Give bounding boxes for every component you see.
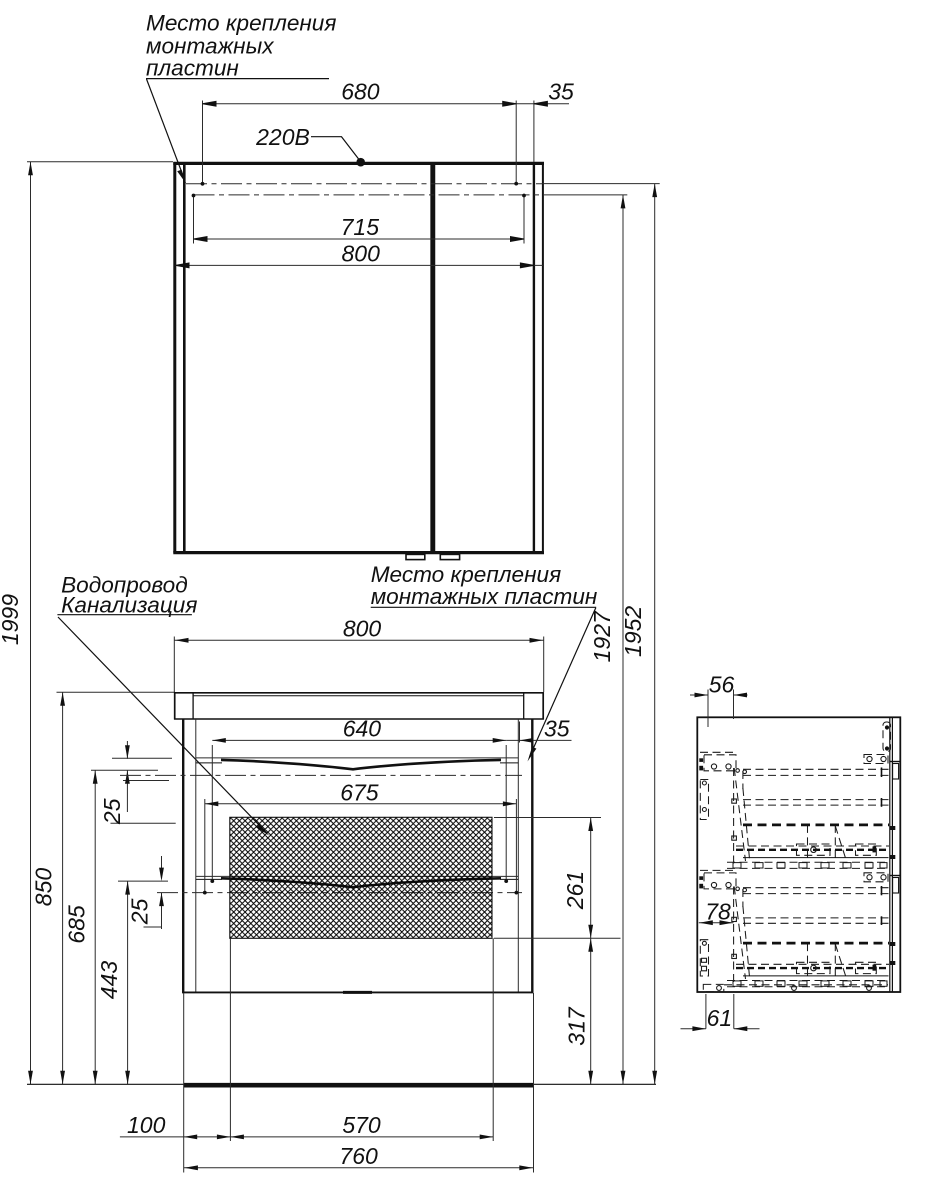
svg-text:35: 35 (544, 715, 570, 741)
svg-text:100: 100 (127, 1112, 166, 1138)
svg-text:1952: 1952 (620, 606, 646, 657)
svg-text:261: 261 (562, 871, 588, 910)
svg-text:570: 570 (342, 1112, 381, 1138)
svg-text:Место крепления: Место крепления (146, 11, 336, 36)
svg-text:монтажных пластин: монтажных пластин (371, 584, 598, 609)
svg-text:пластин: пластин (146, 56, 239, 81)
svg-text:1999: 1999 (0, 594, 23, 645)
svg-text:800: 800 (342, 241, 381, 267)
svg-text:685: 685 (63, 905, 89, 944)
svg-text:680: 680 (341, 79, 380, 105)
svg-text:800: 800 (343, 616, 382, 642)
svg-text:25: 25 (99, 798, 125, 825)
svg-text:Канализация: Канализация (61, 592, 197, 617)
svg-text:443: 443 (96, 961, 122, 1000)
svg-text:56: 56 (709, 672, 735, 698)
svg-text:61: 61 (707, 1005, 733, 1031)
svg-text:78: 78 (705, 898, 731, 924)
svg-text:220В: 220В (255, 124, 310, 150)
svg-text:850: 850 (31, 868, 57, 907)
svg-text:1927: 1927 (589, 610, 615, 662)
svg-text:715: 715 (341, 214, 380, 240)
svg-text:25: 25 (127, 898, 153, 925)
svg-text:675: 675 (340, 779, 379, 805)
svg-text:35: 35 (548, 79, 574, 105)
svg-text:760: 760 (339, 1143, 378, 1169)
svg-text:640: 640 (343, 715, 382, 741)
svg-text:317: 317 (564, 1006, 590, 1046)
